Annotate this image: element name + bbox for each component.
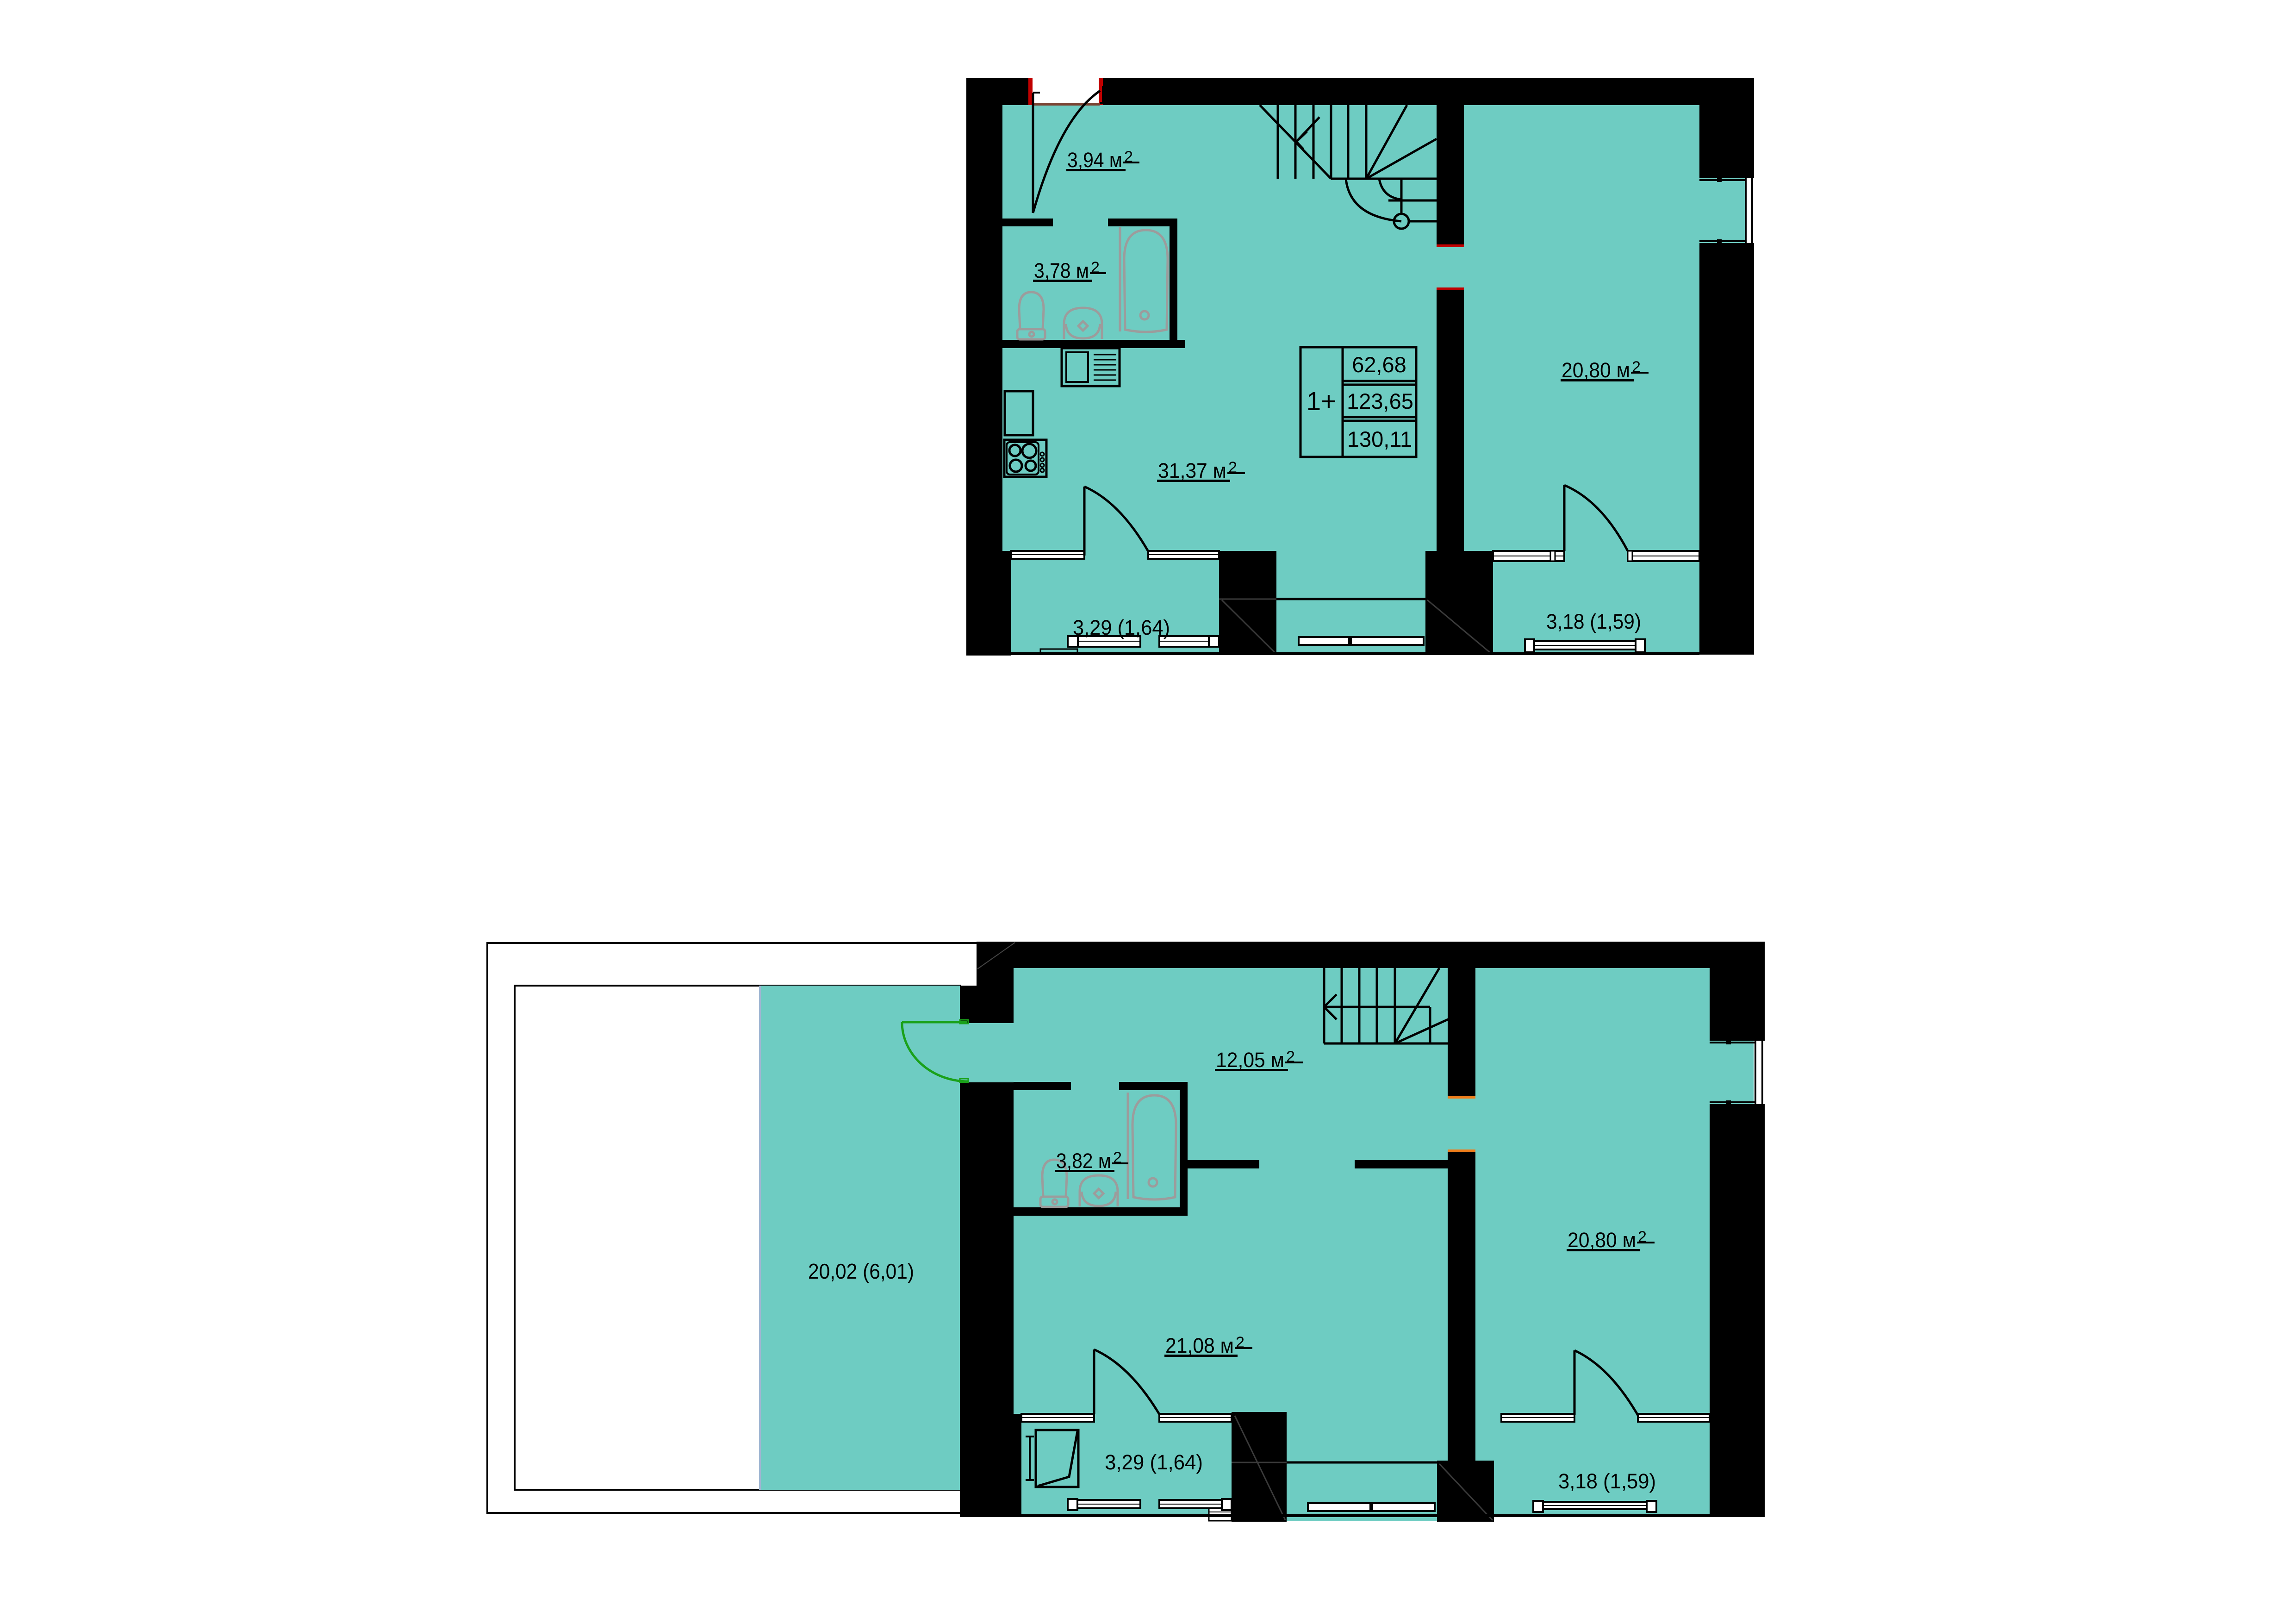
svg-text:3,29 (1,64): 3,29 (1,64) bbox=[1105, 1450, 1203, 1474]
svg-text:31,37 м: 31,37 м bbox=[1158, 459, 1226, 482]
svg-text:123,65: 123,65 bbox=[1347, 389, 1413, 413]
svg-text:130,11: 130,11 bbox=[1347, 427, 1412, 451]
svg-text:21,08 м: 21,08 м bbox=[1165, 1334, 1234, 1357]
svg-text:20,80 м: 20,80 м bbox=[1562, 358, 1630, 382]
svg-text:20,02 (6,01): 20,02 (6,01) bbox=[808, 1259, 914, 1283]
svg-text:3,82 м: 3,82 м bbox=[1056, 1149, 1111, 1173]
svg-text:3,29 (1,64): 3,29 (1,64) bbox=[1073, 616, 1170, 639]
svg-text:62,68: 62,68 bbox=[1352, 352, 1406, 377]
svg-text:1+: 1+ bbox=[1307, 387, 1337, 416]
svg-text:12,05 м: 12,05 м bbox=[1216, 1048, 1284, 1072]
svg-text:3,94 м: 3,94 м bbox=[1067, 148, 1122, 172]
svg-text:3,18 (1,59): 3,18 (1,59) bbox=[1558, 1469, 1656, 1493]
svg-text:20,80 м: 20,80 м bbox=[1568, 1228, 1636, 1252]
svg-text:3,78 м: 3,78 м bbox=[1034, 259, 1089, 282]
svg-text:3,18 (1,59): 3,18 (1,59) bbox=[1546, 610, 1641, 633]
